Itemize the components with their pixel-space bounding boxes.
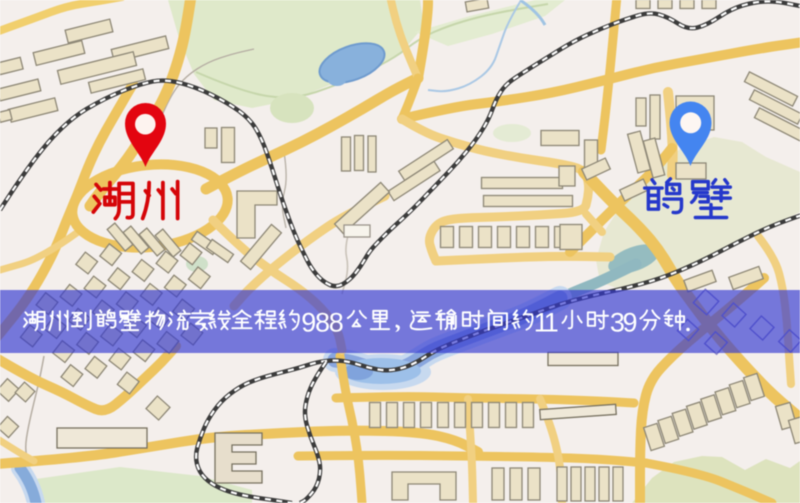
svg-text:1: 1 <box>544 308 559 338</box>
svg-text:8: 8 <box>329 308 344 338</box>
svg-text:9: 9 <box>622 308 637 338</box>
